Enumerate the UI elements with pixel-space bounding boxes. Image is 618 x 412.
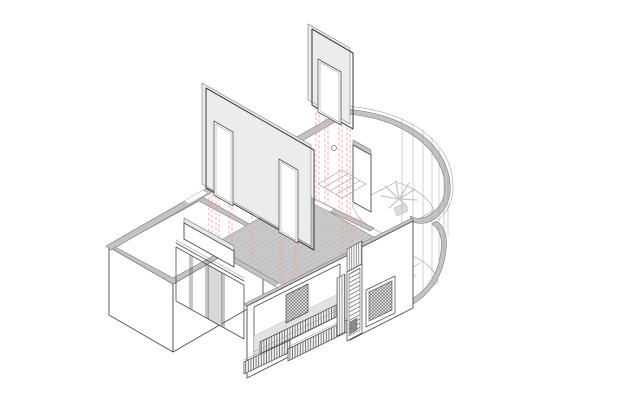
drawing-canvas [0, 0, 618, 412]
partition-shaded-panel [208, 265, 222, 327]
panel-large-door2-frame [279, 159, 298, 243]
axonometric-drawing [0, 0, 618, 412]
door-sidelight [337, 274, 345, 336]
panel-large-door1-frame [214, 121, 233, 206]
wall-slab-face [353, 145, 371, 212]
